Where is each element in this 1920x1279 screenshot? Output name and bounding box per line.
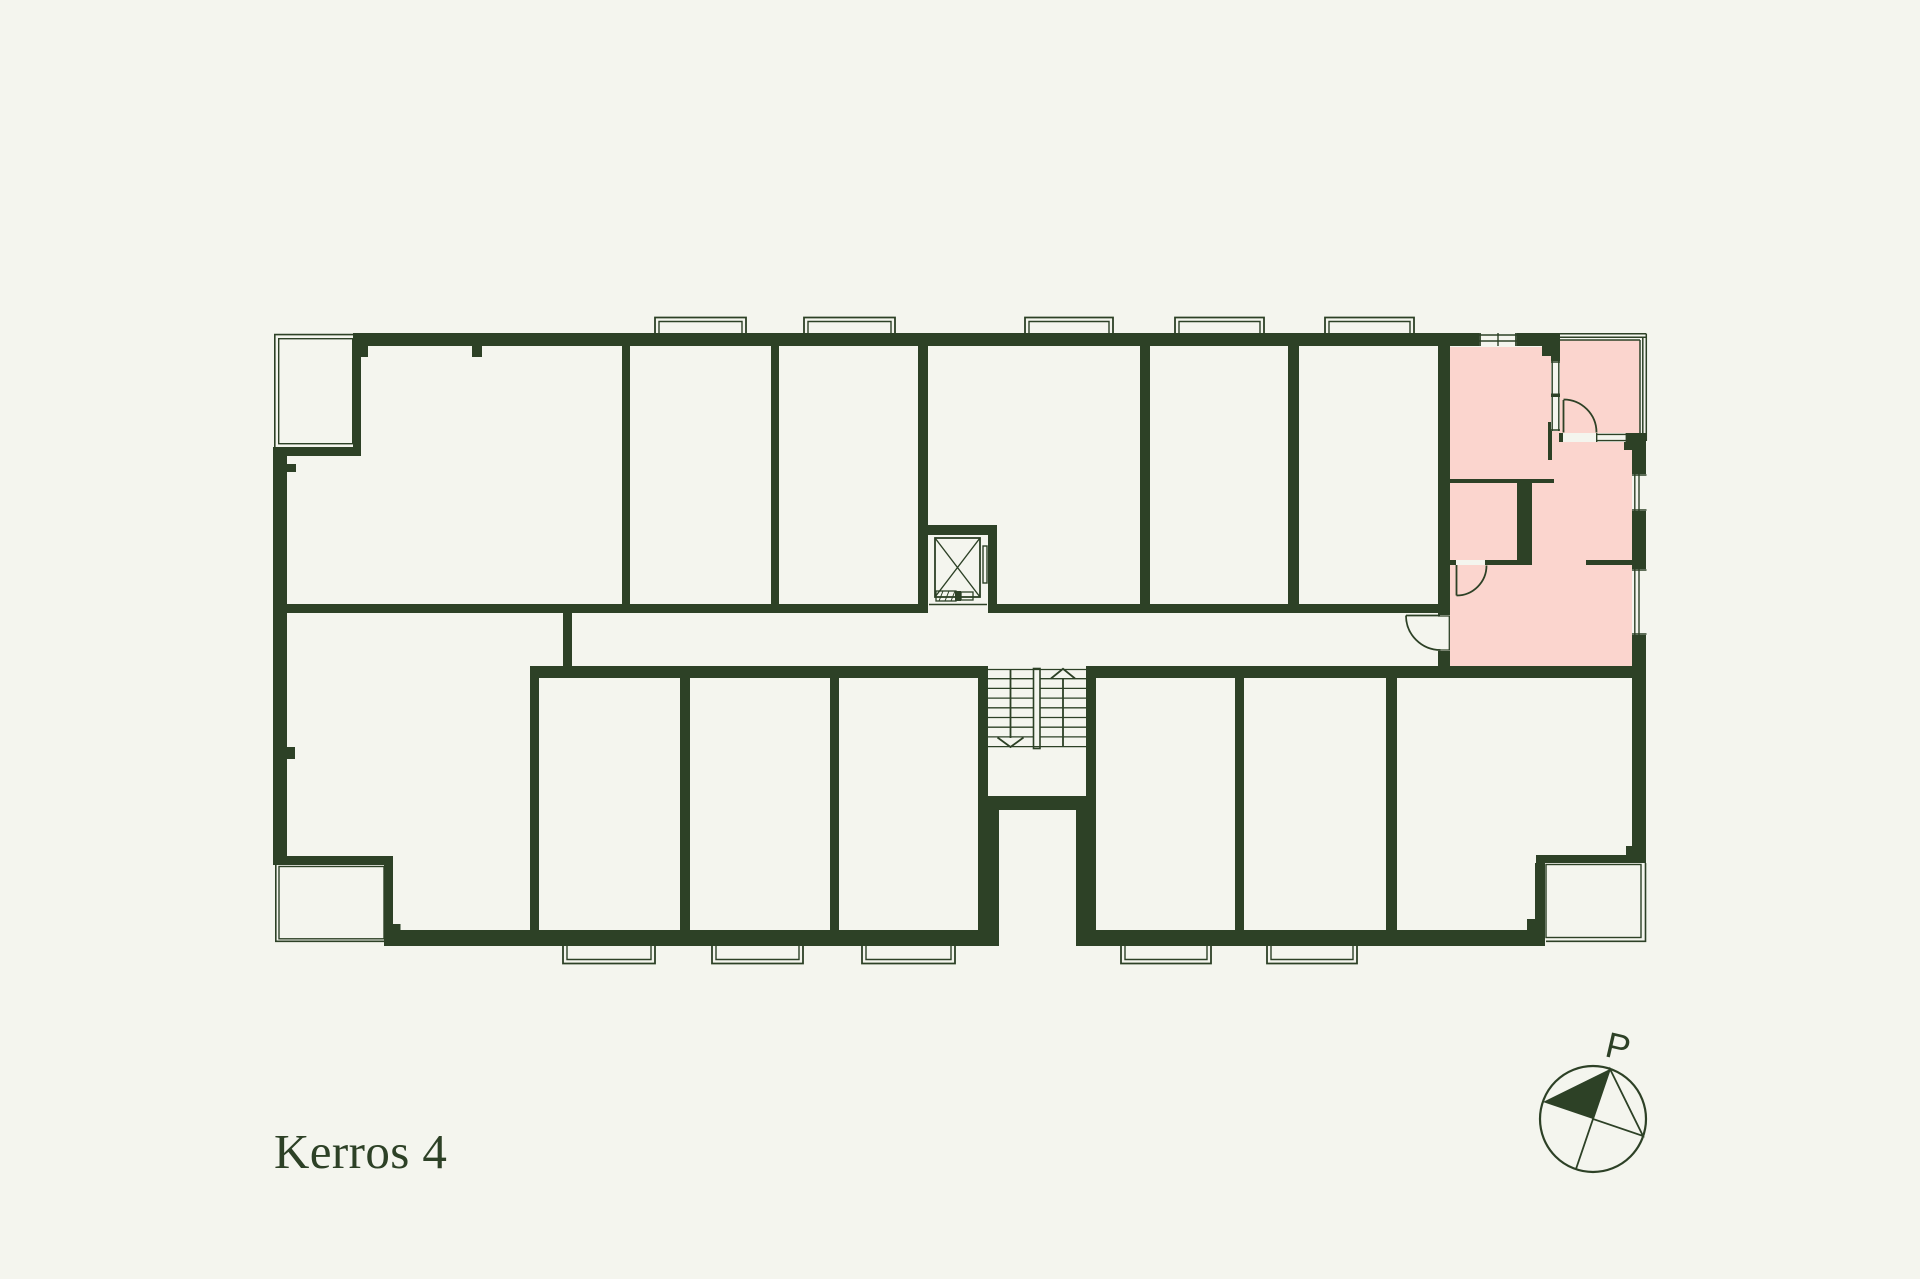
svg-text:Kerros 4: Kerros 4 <box>274 1124 447 1179</box>
